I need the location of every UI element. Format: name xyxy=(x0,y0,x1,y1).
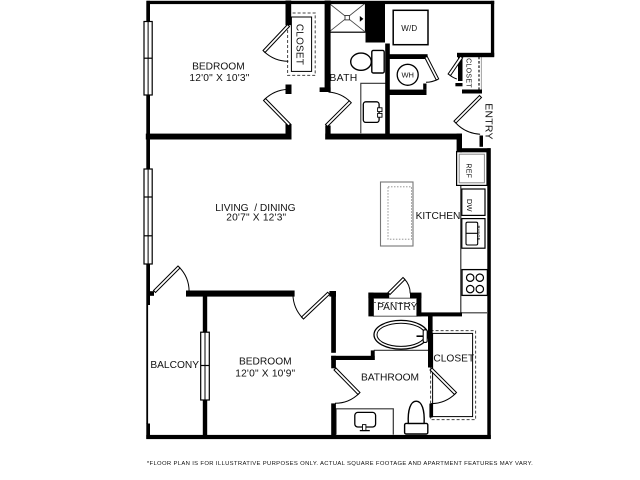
svg-text:ENTRY: ENTRY xyxy=(483,103,494,140)
svg-text:12'0" X 10'9": 12'0" X 10'9" xyxy=(235,369,295,380)
svg-text:WH: WH xyxy=(401,71,414,80)
svg-text:PANTRY: PANTRY xyxy=(377,302,418,313)
svg-text:BATH: BATH xyxy=(329,73,357,84)
svg-text:BALCONY: BALCONY xyxy=(150,360,199,371)
svg-text:DW: DW xyxy=(465,199,474,213)
svg-text:BEDROOM: BEDROOM xyxy=(239,356,292,367)
svg-text:W/D: W/D xyxy=(401,24,417,33)
svg-text:12'0" X 10'3": 12'0" X 10'3" xyxy=(189,73,249,84)
svg-text:CLOSET: CLOSET xyxy=(433,354,474,365)
svg-text:KITCHEN: KITCHEN xyxy=(416,211,461,222)
svg-text:CLOSET: CLOSET xyxy=(464,58,471,88)
svg-text:BEDROOM: BEDROOM xyxy=(192,62,245,73)
svg-text:RANGE: RANGE xyxy=(476,226,481,241)
svg-text:20'7" X 12'3": 20'7" X 12'3" xyxy=(226,213,286,224)
svg-text:REF: REF xyxy=(465,163,472,178)
svg-text:CLOSET: CLOSET xyxy=(294,24,305,65)
svg-text:*FLOOR PLAN IS FOR ILLUSTRATIV: *FLOOR PLAN IS FOR ILLUSTRATIVE PURPOSES… xyxy=(147,461,533,467)
svg-text:BATHROOM: BATHROOM xyxy=(361,373,419,384)
